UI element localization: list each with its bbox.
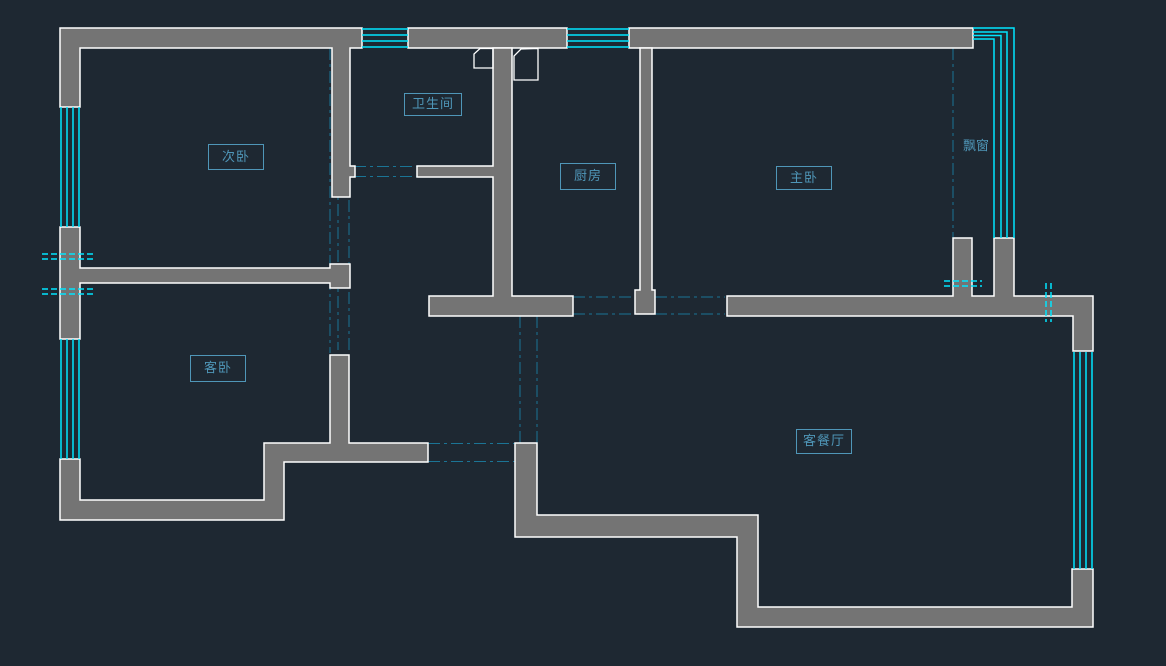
wall-master-bedroom-south [727,238,1093,351]
window-guest-bedroom-west [61,339,79,459]
window-living-room-east [1074,352,1092,569]
floor-plan-canvas[interactable]: 次卧 卫生间 厨房 主卧 客卧 客餐厅 飘窗 [0,0,1166,666]
room-label-guest-bedroom: 客卧 [190,355,246,382]
window-bathroom-north [362,29,408,47]
master-bedroom-door-opening [655,297,725,314]
bay-window-master-bedroom [973,28,1014,238]
wall-top-right [629,28,973,48]
room-label-living-dining: 客餐厅 [796,429,852,454]
window-kitchen-north [567,29,629,47]
window-secondary-bedroom-west [61,107,79,227]
room-label-master-bedroom: 主卧 [776,166,832,190]
room-label-kitchen: 厨房 [560,163,616,190]
room-label-bay-window: 飘窗 [956,136,996,156]
kitchen-door-opening [573,297,635,314]
hall-opening-line [520,316,537,443]
wall-kitchen-east [635,48,655,314]
guest-bedroom-door-opening [428,444,515,462]
bathroom-door-opening [354,167,417,177]
walls-layer [60,28,1093,627]
room-label-bathroom: 卫生间 [404,93,462,116]
wall-bathroom-kitchen-divider-and-hall [417,48,573,316]
wall-left-mid-and-bedroom-divider [60,227,350,339]
floor-plan-drawing [0,0,1166,666]
wall-top-left-and-bathroom-west [60,28,362,197]
wall-top-mid [408,28,567,48]
flue-symbol-bathroom [474,49,493,69]
flue-symbol-kitchen [514,49,538,81]
room-label-secondary-bedroom: 次卧 [208,144,264,170]
wall-living-room-west-and-south [515,443,1093,627]
